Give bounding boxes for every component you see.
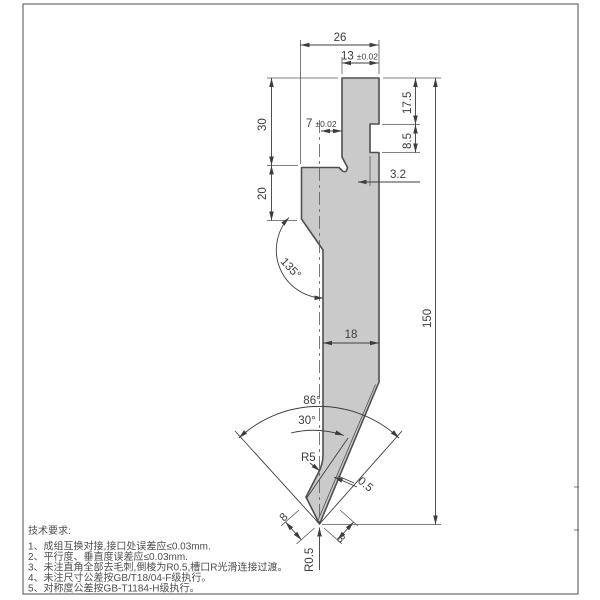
- dim-right-face-text: 8: [334, 533, 347, 546]
- dim-top-width-text: 26: [334, 32, 347, 44]
- dim-notch-height-text: 8.5: [402, 133, 414, 149]
- dim-top-width: 26: [301, 32, 379, 45]
- dim-right-face: 8: [324, 510, 358, 546]
- dim-shoulder-height: 17.5: [402, 78, 416, 125]
- dim-lower-left-height: 20: [257, 166, 272, 221]
- dim-tip-angle-text: 86°: [303, 395, 320, 407]
- dim-upper-left-height-text: 30: [257, 118, 269, 131]
- technical-notes: 技术要求: 1、成组互换对接,接口处误差应≤0.03mm. 2、平行度、垂直度误…: [28, 524, 287, 595]
- dim-center-offset-text: 7±0.02: [306, 118, 337, 130]
- note-line: 4、未注尺寸公差按GB/T18/04-F级执行。: [28, 571, 211, 584]
- dim-body-width-text: 18: [345, 329, 358, 341]
- note-line: 1、成组互换对接,接口处误差应≤0.03mm.: [28, 540, 211, 553]
- dim-center-offset: 7±0.02: [306, 118, 342, 131]
- dim-tip-radius-text: R0.5: [304, 548, 316, 572]
- dim-lower-left-height-text: 20: [257, 187, 269, 200]
- note-line: 3、未注直角全部去毛刺,倒棱为R0.5,槽口R光滑连接过渡。: [28, 561, 287, 574]
- dim-notch-height: 8.5: [402, 125, 416, 153]
- dim-notch-depth-text: 3.2: [390, 169, 406, 181]
- dim-relief-angle-text: 30°: [298, 415, 315, 427]
- dim-land-width-text: 0.5: [355, 475, 375, 494]
- dim-total-height-text: 150: [422, 309, 434, 328]
- dim-left-face-text: 8: [278, 511, 291, 524]
- dim-shoulder-height-text: 17.5: [402, 92, 414, 114]
- dim-upper-left-height: 30: [257, 78, 272, 166]
- cad-drawing-canvas: 26 13±0.02 17.5 8.5 150 3.2 30 20 7±0.: [0, 0, 600, 600]
- dim-tang-width: 13±0.02: [341, 51, 379, 64]
- note-line: 2、平行度、垂直度误差应≤0.03mm.: [28, 550, 188, 563]
- note-line: 5、对称度公差按GB-T1184-H级执行。: [28, 582, 200, 595]
- dim-total-height: 150: [422, 78, 436, 525]
- notes-title: 技术要求:: [28, 524, 71, 537]
- dim-tip-radius: R0.5: [304, 528, 320, 573]
- dim-relief-radius-text: R5: [301, 452, 316, 464]
- dim-relief-radius: R5: [301, 452, 320, 471]
- dim-tang-width-text: 13±0.02: [341, 51, 378, 63]
- dim-left-face: 8: [278, 510, 315, 544]
- dim-taper-angle-text: 135°: [278, 256, 303, 282]
